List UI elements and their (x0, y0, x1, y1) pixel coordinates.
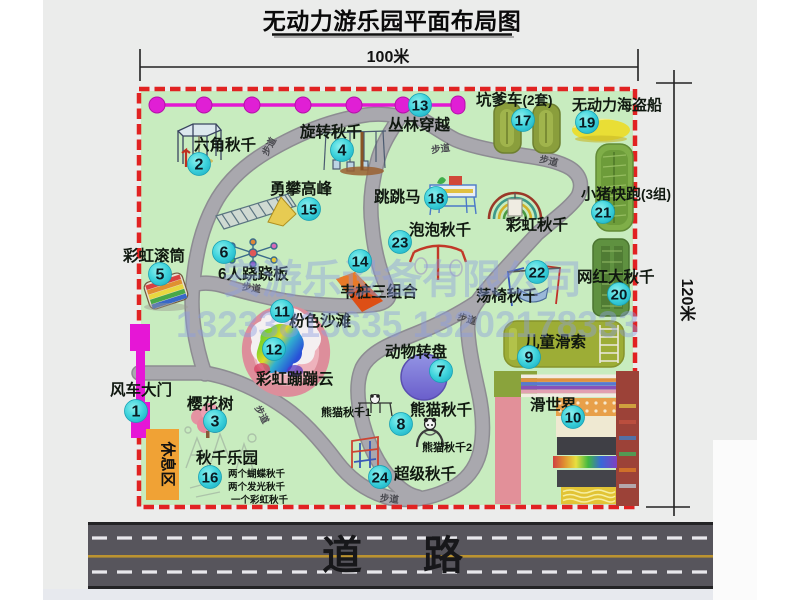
svg-text:4: 4 (338, 143, 347, 160)
svg-text:休息区: 休息区 (159, 440, 177, 486)
svg-text:21: 21 (595, 205, 612, 222)
svg-text:熊猫秋千: 熊猫秋千 (410, 400, 473, 419)
svg-text:9: 9 (525, 350, 534, 367)
svg-text:道: 道 (322, 534, 362, 578)
svg-text:11: 11 (274, 304, 290, 321)
svg-text:超级秋千: 超级秋千 (393, 464, 457, 483)
svg-text:泡泡秋千: 泡泡秋千 (409, 220, 472, 239)
svg-text:5: 5 (156, 267, 165, 284)
svg-text:彩虹秋千: 彩虹秋千 (505, 215, 569, 234)
svg-text:18: 18 (428, 191, 445, 208)
svg-text:10: 10 (565, 410, 582, 427)
svg-text:17: 17 (515, 113, 532, 130)
svg-text:19: 19 (579, 115, 596, 132)
svg-text:彩虹滚筒: 彩虹滚筒 (122, 246, 185, 265)
svg-text:120米: 120米 (678, 279, 697, 323)
svg-text:两个蝴蝶秋千: 两个蝴蝶秋千 (228, 468, 286, 480)
svg-text:6: 6 (220, 245, 229, 262)
svg-text:一个彩虹秋千: 一个彩虹秋千 (231, 494, 289, 506)
svg-text:7: 7 (437, 364, 446, 381)
svg-text:坑爹车(2套): 坑爹车(2套) (476, 90, 553, 109)
svg-text:24: 24 (372, 470, 389, 487)
svg-text:13233815635 13202178333: 13233815635 13202178333 (176, 304, 639, 345)
svg-text:14: 14 (352, 254, 369, 271)
svg-text:风车大门: 风车大门 (110, 380, 172, 399)
svg-text:100米: 100米 (367, 47, 411, 66)
svg-text:12: 12 (266, 342, 283, 359)
svg-text:跳跳马: 跳跳马 (374, 187, 421, 206)
svg-text:两个发光秋千: 两个发光秋千 (228, 481, 286, 493)
svg-text:秋千乐园: 秋千乐园 (196, 448, 258, 467)
svg-text:13: 13 (412, 98, 429, 115)
svg-text:六角秋千: 六角秋千 (194, 135, 257, 154)
svg-text:路: 路 (423, 534, 464, 578)
svg-text:22: 22 (529, 265, 546, 282)
svg-text:步道: 步道 (379, 492, 400, 506)
svg-text:丛林穿越: 丛林穿越 (388, 115, 451, 134)
svg-text:15: 15 (301, 202, 318, 219)
svg-text:彩虹蹦蹦云: 彩虹蹦蹦云 (255, 369, 334, 388)
svg-text:小猪快跑(3组): 小猪快跑(3组) (581, 185, 671, 203)
svg-text:无动力游乐园平面布局图: 无动力游乐园平面布局图 (263, 8, 522, 34)
svg-text:20: 20 (611, 287, 628, 304)
svg-text:1: 1 (132, 404, 141, 421)
svg-text:熊猫秋千1: 熊猫秋千1 (321, 405, 371, 419)
svg-text:8: 8 (397, 417, 406, 434)
svg-text:熊猫秋千2: 熊猫秋千2 (422, 440, 472, 454)
svg-text:16: 16 (202, 470, 219, 487)
svg-text:3: 3 (211, 414, 220, 431)
svg-text:23: 23 (392, 235, 409, 252)
svg-text:勇攀高峰: 勇攀高峰 (270, 179, 333, 198)
svg-text:2: 2 (195, 157, 204, 174)
svg-text:旋转秋千: 旋转秋千 (299, 122, 363, 141)
